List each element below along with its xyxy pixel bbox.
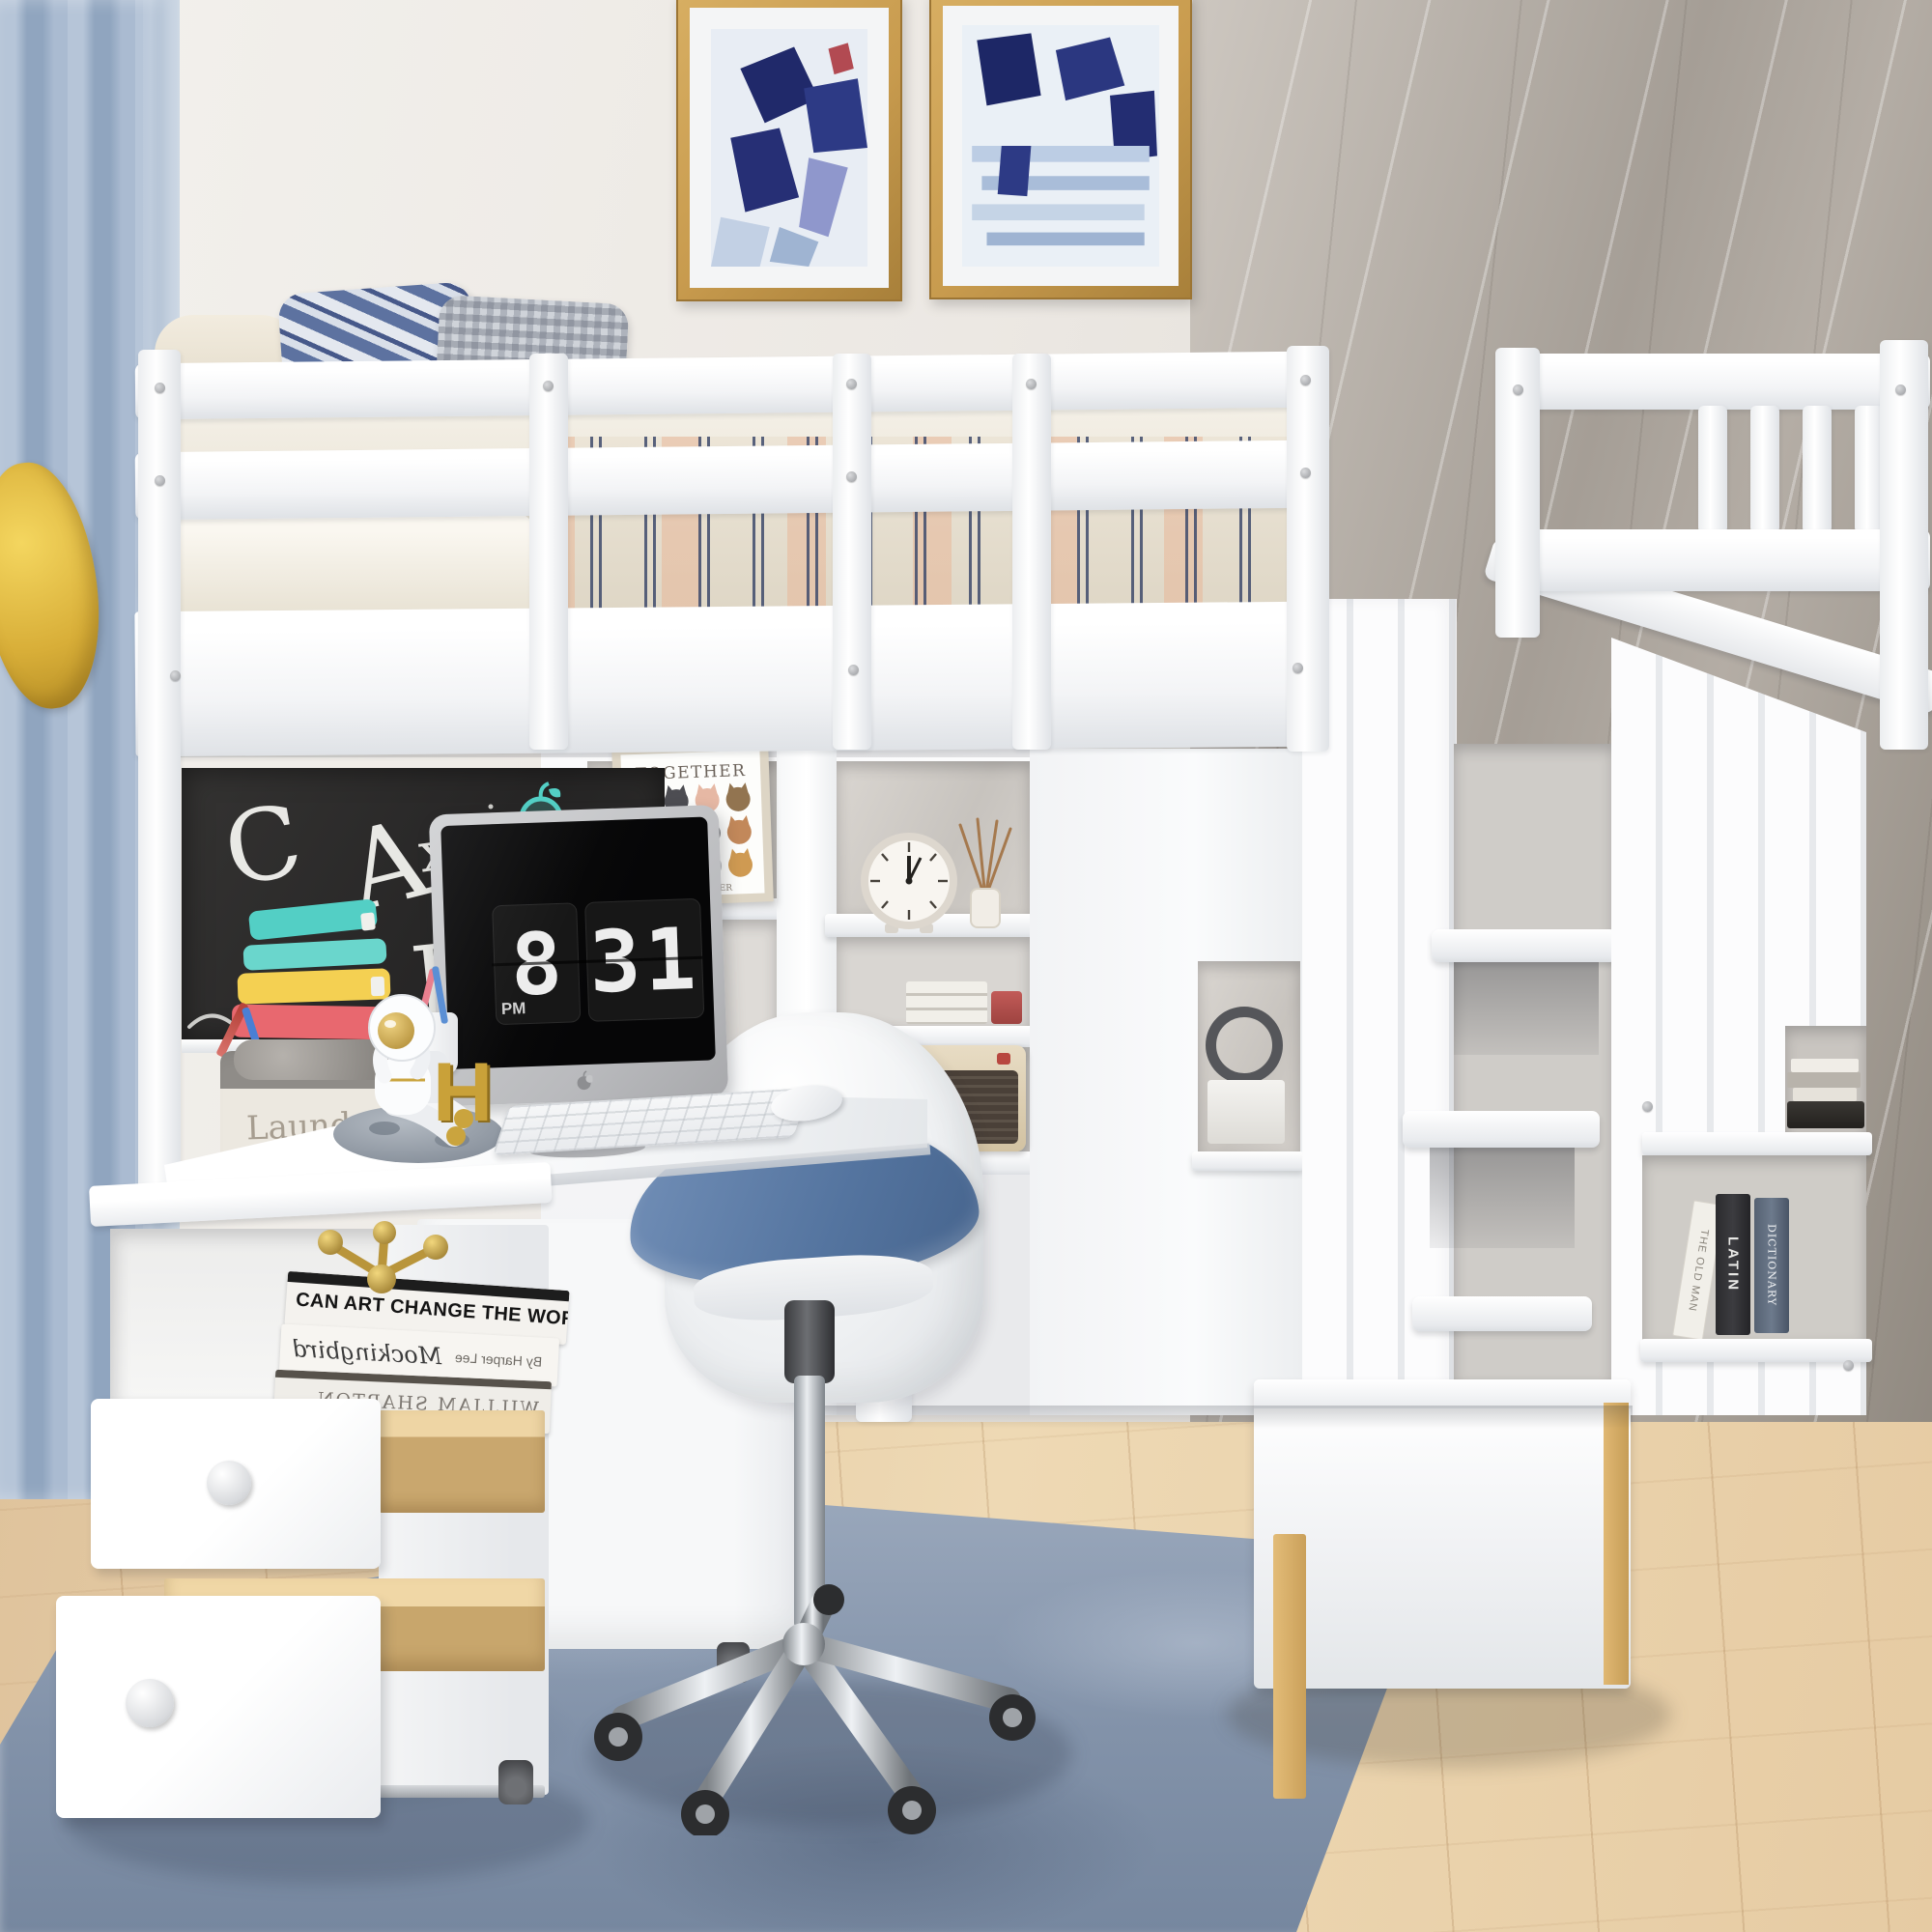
reed-diffuser-icon — [951, 817, 1020, 929]
hutch-shelf — [1192, 1151, 1304, 1171]
wood-accent-strip — [1604, 1403, 1629, 1685]
book-latin: LATIN — [1716, 1194, 1750, 1335]
screw-icon — [1300, 468, 1311, 478]
screw-icon — [1895, 384, 1906, 395]
book-spine-label: DICTIONARY — [1766, 1224, 1778, 1306]
landing-rail-bottom — [1499, 529, 1930, 591]
stair-step — [1412, 1296, 1592, 1331]
bed-post — [529, 354, 568, 750]
abstract-art-icon — [711, 29, 867, 267]
book-spine-label: LATIN — [1725, 1236, 1742, 1293]
screw-icon — [1642, 1101, 1653, 1112]
screw-icon — [1026, 379, 1037, 389]
bed-post — [1012, 354, 1051, 750]
stair-base-top-edge — [1254, 1379, 1631, 1408]
screw-icon — [1513, 384, 1523, 395]
wall-art-right — [929, 0, 1192, 299]
screw-icon — [1293, 663, 1303, 673]
stair-step — [1432, 929, 1617, 962]
drawer-knob — [207, 1461, 251, 1505]
screw-icon — [170, 670, 181, 681]
storage-box — [1207, 1080, 1285, 1144]
alarm-clock-icon — [856, 829, 962, 937]
bookshelf-shelf — [1642, 1132, 1872, 1155]
book-dictionary: DICTIONARY — [1754, 1198, 1789, 1333]
chair-cylinder — [784, 1300, 835, 1383]
apple-logo-icon — [575, 1070, 593, 1093]
drawer-front-lower — [56, 1596, 381, 1818]
caster-wheel-icon — [498, 1760, 533, 1804]
screw-icon — [846, 379, 857, 389]
chair-base — [580, 1584, 1082, 1835]
bed-post — [1287, 346, 1329, 752]
drawer-front-upper — [91, 1399, 381, 1569]
railing-post — [1880, 340, 1928, 750]
abstract-art-icon — [962, 25, 1159, 267]
bedroom-scene: TOGETHER WE ARE POWER — [0, 0, 1932, 1932]
screw-icon — [1300, 375, 1311, 385]
gold-jack-decor — [290, 1219, 473, 1308]
railing-slat — [1803, 406, 1832, 533]
wood-leg-accent — [1273, 1534, 1306, 1799]
drawer-box-upper — [379, 1410, 545, 1513]
landing-rail-top — [1499, 354, 1930, 410]
book-spine-label: THE OLD MAN — [1686, 1228, 1710, 1312]
screw-icon — [1843, 1360, 1854, 1371]
book-author: By Harper Lee — [455, 1350, 543, 1370]
stacked-books — [1787, 1059, 1864, 1132]
letter-h-bookend: H — [433, 1045, 493, 1141]
guardrail-bottom — [135, 440, 1311, 521]
screw-icon — [848, 665, 859, 675]
bookshelf-shelf — [1640, 1339, 1872, 1362]
headphones-icon — [1206, 1007, 1283, 1084]
drawer-knob — [126, 1679, 174, 1727]
book-title: Mockingbird — [291, 1335, 442, 1370]
bed-frame-fascia — [134, 602, 1310, 757]
railing-slat — [1698, 406, 1727, 533]
screw-icon — [155, 383, 165, 393]
stair-step-shadow — [1430, 1148, 1575, 1248]
railing-slat — [1750, 406, 1779, 533]
screw-icon — [155, 475, 165, 486]
screw-icon — [543, 381, 554, 391]
stair-step — [1403, 1111, 1600, 1148]
stair-cubby-column — [1454, 744, 1613, 1381]
bed-post — [833, 354, 871, 750]
chalk-letter-c: C — [216, 783, 311, 910]
wall-art-left — [676, 0, 902, 301]
screw-icon — [846, 471, 857, 482]
stair-step-shadow — [1454, 962, 1599, 1055]
